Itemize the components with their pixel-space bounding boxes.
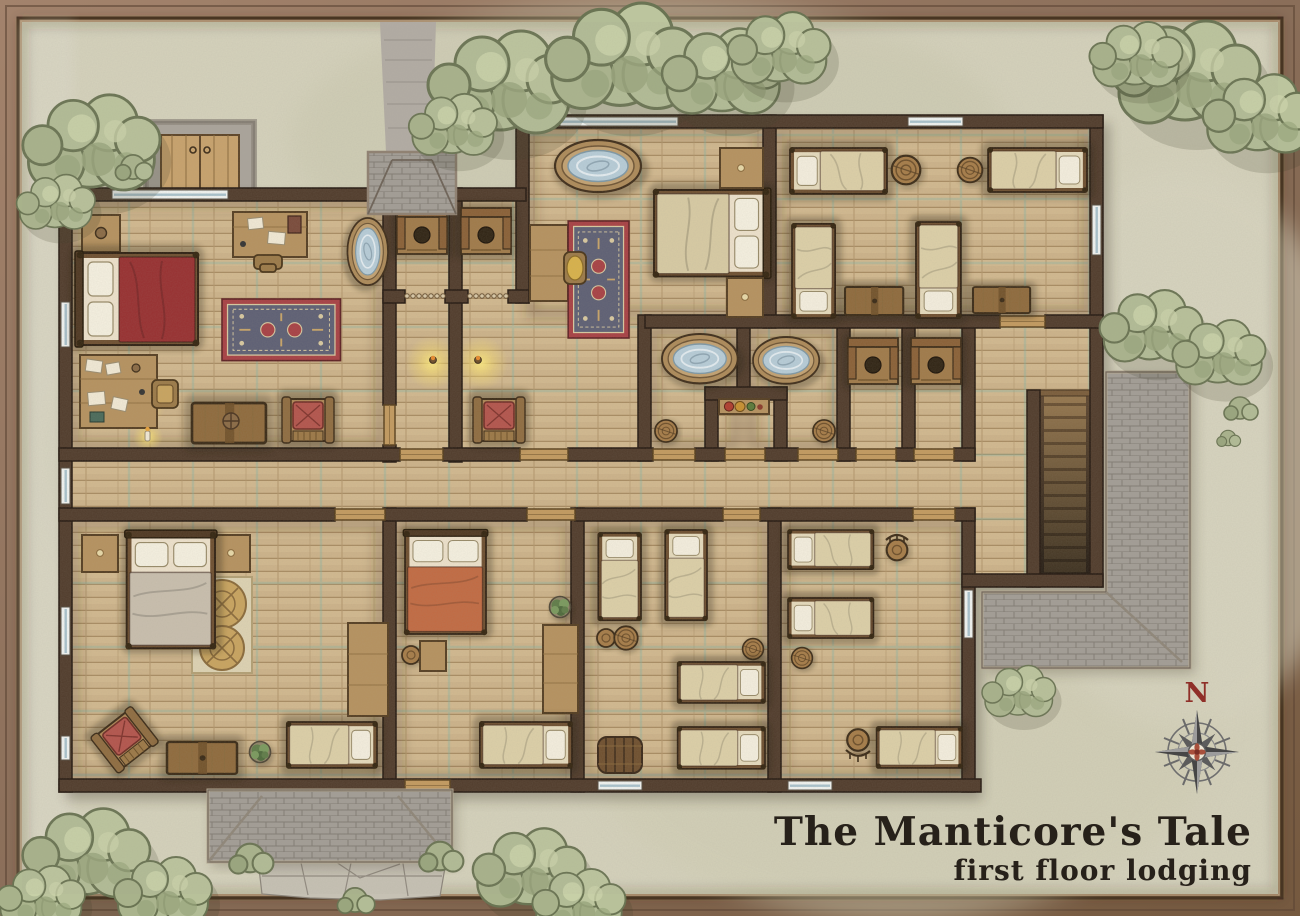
- paper-texture: [22, 22, 1278, 894]
- map-canvas: N The Manticore's Tale first floor lodgi…: [0, 0, 1300, 916]
- map-title: The Manticore's Tale: [774, 809, 1252, 855]
- map-subtitle: first floor lodging: [954, 854, 1252, 887]
- compass-north-label: N: [1185, 678, 1210, 709]
- floorplan-map: N The Manticore's Tale first floor lodgi…: [0, 0, 1300, 916]
